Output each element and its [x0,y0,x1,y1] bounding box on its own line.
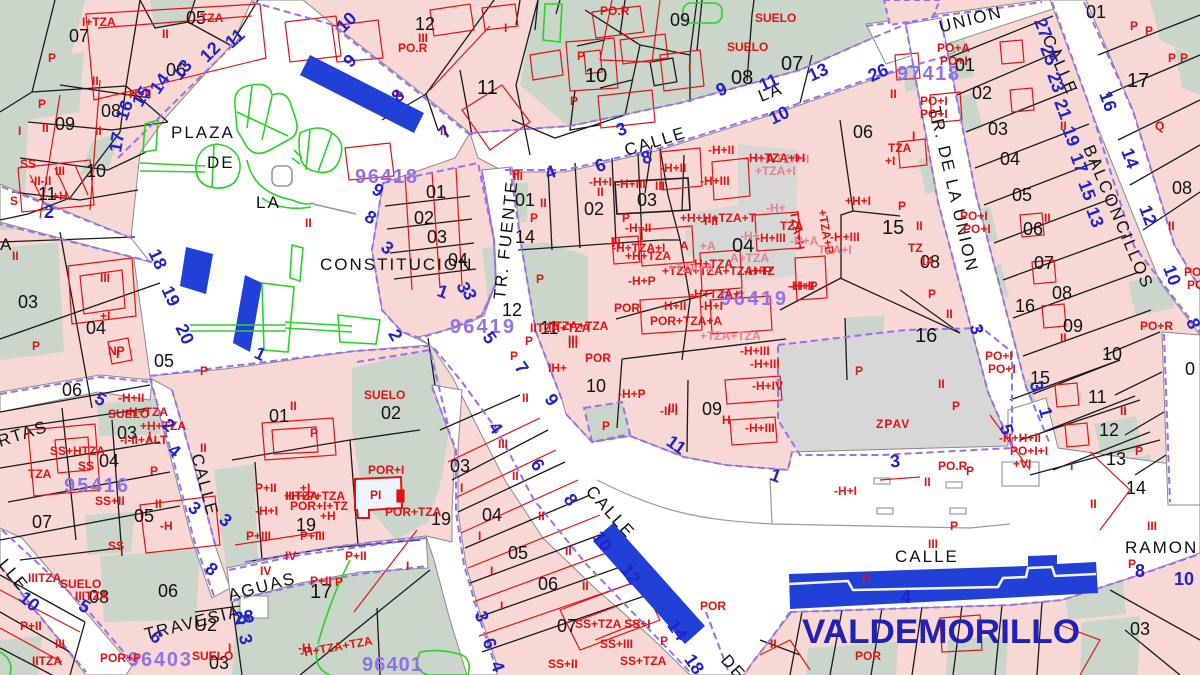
svg-text:+TZA+TZA: +TZA+TZA [700,329,761,343]
svg-text:-H+II: -H+II [660,161,686,175]
svg-text:P: P [530,211,538,225]
svg-text:P: P [602,419,610,433]
svg-text:-II-I: -II-I [660,404,678,418]
svg-text:P: P [862,572,870,586]
svg-text:P+II: P+II [20,619,42,633]
svg-text:PO+I: PO+I [960,209,988,223]
svg-text:TZ: TZ [908,241,923,255]
svg-text:-H: -H [160,519,173,533]
svg-text:SS+TZA: SS+TZA [620,654,667,668]
svg-text:II: II [582,579,589,593]
svg-text:13: 13 [1106,449,1126,469]
svg-text:-I-II+ALT: -I-II+ALT [120,433,168,447]
svg-text:P: P [898,199,906,213]
svg-text:04: 04 [1000,149,1020,169]
svg-text:12: 12 [502,300,522,320]
svg-text:P: P [928,287,936,301]
svg-text:02: 02 [381,403,401,423]
svg-text:A: A [766,152,775,166]
svg-text:11: 11 [1088,387,1107,407]
svg-text:II: II [1120,404,1127,418]
svg-text:P: P [525,334,533,348]
svg-text:-H+III: -H+III [830,230,860,244]
svg-text:3: 3 [889,451,901,472]
svg-text:03: 03 [1130,619,1150,639]
svg-text:II: II [522,391,529,405]
svg-text:+VI: +VI [1013,457,1031,471]
svg-text:PO+I: PO+I [985,349,1013,363]
svg-text:II: II [924,475,931,489]
svg-text:-H+IV: -H+IV [752,379,783,393]
svg-text:06: 06 [1023,219,1043,239]
svg-text:II: II [200,441,207,455]
svg-text:-H+III: -H+III [750,357,780,371]
svg-text:12: 12 [1099,420,1119,440]
svg-text:P: P [536,272,544,286]
svg-text:III: III [928,537,938,551]
svg-text:10: 10 [585,65,607,87]
svg-text:II: II [1044,211,1051,225]
svg-text:III: III [418,31,428,45]
svg-text:III: III [513,169,523,183]
svg-text:14: 14 [1126,478,1146,498]
svg-text:-H+: -H+ [766,201,786,215]
svg-text:-H+I: -H+I [834,484,857,498]
svg-text:8: 8 [1135,561,1145,581]
svg-text:PO+R: PO+R [1140,319,1173,333]
svg-text:05: 05 [154,351,174,371]
svg-text:II: II [916,219,923,233]
svg-text:POR+TZA: POR+TZA [385,505,442,519]
svg-text:02: 02 [584,199,604,219]
svg-text:II: II [305,216,312,230]
svg-text:RAMON: RAMON [1125,538,1198,557]
svg-text:SS: SS [108,539,124,553]
svg-text:ZPAV: ZPAV [876,417,910,431]
svg-text:PO+I: PO+I [963,222,991,236]
svg-text:-H+III: -H+III [745,421,775,435]
svg-text:III: III [568,337,578,351]
svg-text:III: III [655,179,665,193]
svg-text:P: P [1180,51,1188,65]
svg-text:SUELO: SUELO [755,11,796,25]
svg-text:P: P [1130,19,1138,33]
svg-text:04: 04 [482,505,502,525]
svg-text:VALDEMORILLO: VALDEMORILLO [802,613,1080,651]
svg-text:I: I [1070,459,1073,473]
svg-text:PO.R: PO.R [600,4,630,18]
svg-text:07: 07 [1034,253,1054,273]
svg-text:+TZA+A: +TZA+A [668,261,714,275]
svg-text:P: P [510,349,518,363]
svg-text:P: P [200,364,208,378]
svg-text:IITZA+TZA: IITZA+TZA [530,321,591,335]
svg-text:15: 15 [882,217,904,239]
svg-text:-I-II: -I-II [700,214,718,228]
svg-text:PO+I: PO+I [940,54,968,68]
svg-text:P: P [1135,444,1143,458]
svg-text:S: S [10,194,18,208]
svg-text:01: 01 [426,182,446,202]
svg-text:P: P [577,49,585,63]
svg-text:+I: +I [885,154,895,168]
svg-text:-H+II: -H+II [708,143,734,157]
svg-text:I: I [148,429,151,443]
svg-text:-H+III: -H+III [756,231,786,245]
svg-text:14: 14 [515,227,535,247]
svg-text:H: H [722,413,731,427]
svg-text:SS: SS [20,157,36,171]
svg-text:TZA+I: TZA+I [818,243,852,257]
svg-text:P: P [38,97,46,111]
svg-text:P: P [32,339,40,353]
svg-text:P: P [660,634,668,648]
svg-text:III: III [1147,519,1157,533]
svg-text:03: 03 [637,190,657,210]
svg-text:05: 05 [1012,185,1032,205]
svg-text:10: 10 [86,161,106,181]
svg-text:POR+I: POR+I [368,463,404,477]
svg-text:06: 06 [853,122,873,142]
svg-text:A+TZA: A+TZA [730,251,769,265]
svg-text:-II-II: -II-II [30,174,51,188]
svg-text:P: P [952,399,960,413]
svg-text:POR: POR [700,599,726,613]
svg-text:IIITZA: IIITZA [28,571,62,585]
svg-text:II: II [946,307,953,321]
svg-text:SS+TZA SS+I: SS+TZA SS+I [575,617,651,631]
svg-text:III: III [55,164,65,178]
svg-text:03: 03 [18,292,38,312]
svg-text:10: 10 [1174,569,1194,589]
svg-text:II: II [95,124,102,138]
svg-text:-H+II: -H+II [118,391,144,405]
svg-text:0: 0 [1185,359,1195,379]
svg-text:II: II [1090,497,1097,511]
svg-text:P: P [1145,24,1153,38]
svg-text:PI: PI [370,488,381,502]
svg-text:-H+I: -H+I [589,175,612,189]
svg-text:TZA: TZA [888,141,912,155]
svg-text:01: 01 [515,190,535,210]
svg-text:17: 17 [1127,70,1149,92]
svg-text:TZA: TZA [28,467,52,481]
svg-text:PO+I: PO+I [1187,278,1200,292]
svg-text:POR+I+TZ: POR+I+TZ [290,499,348,513]
svg-text:PO+A: PO+A [937,41,970,55]
svg-text:SS: SS [78,459,94,473]
svg-text:P: P [150,464,158,478]
svg-text:II: II [1168,219,1175,233]
svg-text:P: P [1168,51,1176,65]
svg-text:P+II: P+II [255,481,277,495]
svg-text:-H+II: -H+II [625,221,651,235]
svg-text:I: I [460,481,463,495]
svg-text:06: 06 [538,574,558,594]
svg-text:IH+: IH+ [548,361,567,375]
svg-text:IV: IV [260,564,271,578]
svg-text:NP: NP [108,344,125,358]
svg-text:SS+III: SS+III [600,637,633,651]
svg-text:I: I [504,21,507,35]
svg-text:II: II [890,87,897,101]
svg-text:P: P [48,51,56,65]
svg-text:Q: Q [1155,119,1164,133]
svg-text:PO+I: PO+I [920,107,948,121]
svg-text:10: 10 [586,376,606,396]
svg-text:I: I [18,124,21,138]
svg-text:09: 09 [702,399,722,419]
svg-text:P+III: P+III [246,529,271,543]
svg-text:I: I [228,641,231,655]
svg-text:-H+III: -H+III [740,344,770,358]
svg-text:U2: U2 [194,615,217,635]
svg-text:POR+P: POR+P [100,651,141,665]
svg-text:IV: IV [285,549,296,563]
svg-text:11: 11 [477,77,498,99]
svg-text:I: I [406,559,409,573]
svg-text:P: P [950,519,958,533]
svg-text:07: 07 [32,512,52,532]
svg-text:+A: +A [700,239,716,253]
svg-text:96401: 96401 [362,654,422,675]
svg-text:PLAZA: PLAZA [171,123,235,142]
svg-text:-H+TZA: -H+TZA [125,405,168,419]
svg-text:PO.R: PO.R [938,459,968,473]
svg-text:+TZA+I: +TZA+I [755,164,796,178]
svg-text:I+TZA: I+TZA [82,15,116,29]
svg-text:02: 02 [972,83,992,103]
svg-text:II: II [42,121,49,135]
svg-text:I: I [688,61,691,75]
svg-text:+H+H+TZA+T: +H+H+TZA+T [680,211,757,225]
svg-text:P+II: P+II [345,549,367,563]
svg-text:04: 04 [448,250,468,270]
svg-text:-H+P: -H+P [744,264,772,278]
svg-text:08: 08 [1052,283,1072,303]
svg-text:03: 03 [450,456,470,476]
svg-text:PO+A: PO+A [1184,265,1200,279]
svg-text:CALLE: CALLE [895,547,959,566]
svg-text:II: II [155,497,162,511]
svg-text:POR+TZA+A: POR+TZA+A [650,314,722,328]
svg-text:10: 10 [1102,344,1122,364]
svg-text:SUELO: SUELO [727,40,768,54]
svg-text:II: II [162,27,169,41]
svg-text:+H: +H [52,189,68,203]
svg-text:P: P [310,426,318,440]
svg-text:17: 17 [105,130,128,153]
svg-text:SS+HTZA: SS+HTZA [50,444,105,458]
svg-text:16: 16 [915,325,937,347]
svg-text:PO+I+I: PO+I+I [1010,444,1048,458]
svg-text:P: P [335,575,343,589]
svg-text:II: II [565,544,572,558]
svg-text:SUELO: SUELO [364,388,405,402]
svg-text:14: 14 [920,254,934,268]
svg-text:-H+I: -H+I [700,299,723,313]
svg-text:-H+III: -H+III [616,177,646,191]
svg-text:+H+TZA: +H+TZA [625,249,671,263]
svg-text:-H+P: -H+P [618,387,646,401]
svg-text:POR: POR [855,649,881,663]
svg-text:+I: +I [300,481,310,495]
svg-text:IITZA: IITZA [32,654,62,668]
svg-text:01: 01 [1086,2,1106,22]
svg-text:I: I [478,529,481,543]
svg-text:08: 08 [731,67,753,89]
svg-text:LA: LA [256,193,281,212]
svg-text:II: II [12,249,19,263]
svg-text:II: II [770,637,777,651]
svg-text:-H+II: -H+II [660,299,686,313]
svg-text:II: II [1060,331,1067,345]
svg-text:01: 01 [269,406,289,426]
svg-text:+I: +I [100,309,110,323]
svg-text:-H+P: -H+P [790,279,818,293]
svg-text:02: 02 [414,208,434,228]
svg-text:03: 03 [427,227,447,247]
svg-text:4: 4 [901,587,911,607]
svg-text:-H+P: -H+P [628,274,656,288]
svg-text:II: II [938,377,945,391]
svg-text:06: 06 [62,380,82,400]
svg-text:TZA: TZA [200,11,224,25]
svg-text:III: III [55,637,65,651]
svg-text:II: II [540,196,547,210]
svg-text:A: A [680,239,689,253]
svg-text:II: II [290,399,297,413]
svg-text:TZA: TZA [780,219,804,233]
svg-text:POR: POR [585,351,611,365]
svg-text:I: I [490,564,493,578]
svg-text:06: 06 [158,581,178,601]
svg-text:09: 09 [670,10,690,30]
svg-text:-H+A: -H+A [790,234,819,248]
svg-text:I: I [912,129,915,143]
svg-text:08: 08 [1172,178,1192,198]
svg-text:+H+I: +H+I [845,194,871,208]
svg-text:I: I [500,599,503,613]
svg-text:P+III: P+III [300,529,325,543]
svg-text:II: II [512,469,519,483]
svg-text:III: III [498,437,508,451]
svg-text:P: P [855,364,863,378]
svg-text:II: II [538,509,545,523]
svg-text:DE: DE [207,153,235,172]
svg-text:07: 07 [781,53,803,75]
svg-text:P+II: P+II [310,574,332,588]
svg-text:SS+II: SS+II [95,494,125,508]
svg-text:05: 05 [134,506,154,526]
svg-text:PO+I: PO+I [920,94,948,108]
svg-text:POR: POR [614,301,640,315]
svg-text:SS+II: SS+II [548,657,578,671]
svg-text:03: 03 [988,119,1008,139]
svg-text:PO+I: PO+I [988,362,1016,376]
svg-text:2: 2 [44,202,54,222]
svg-text:-H: -H [608,236,621,250]
svg-text:05: 05 [508,543,528,563]
svg-text:III: III [100,271,110,285]
svg-text:16: 16 [1015,296,1035,316]
svg-text:09: 09 [55,114,75,134]
svg-text:P: P [570,94,578,108]
svg-text:-H+III: -H+III [700,174,730,188]
svg-text:07: 07 [69,26,89,46]
svg-text:II: II [92,74,99,88]
svg-text:+I: +I [795,151,805,165]
svg-text:-H+I: -H+I [255,504,278,518]
